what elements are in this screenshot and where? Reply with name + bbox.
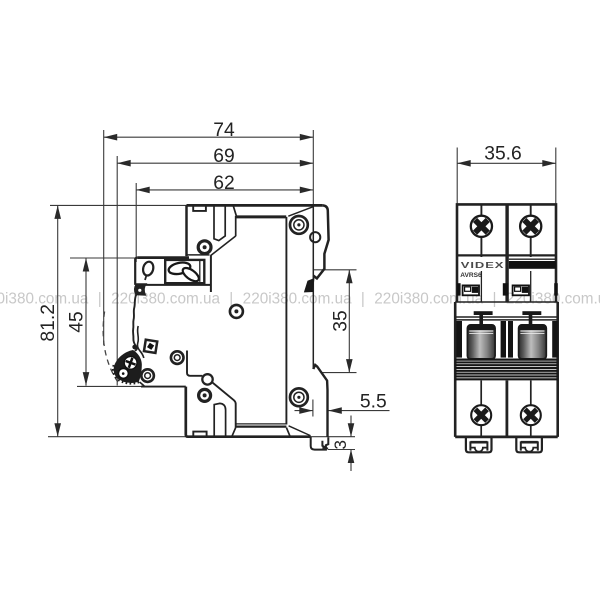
svg-text:220i380.com.ua: 220i380.com.ua: [111, 291, 220, 308]
svg-text:VIDEX: VIDEX: [461, 261, 505, 270]
svg-text:35: 35: [330, 310, 351, 331]
svg-text:69: 69: [213, 146, 234, 167]
svg-text:220i380.com.ua: 220i380.com.ua: [243, 291, 352, 308]
svg-text:81.2: 81.2: [38, 304, 59, 342]
svg-text:45: 45: [66, 311, 87, 332]
svg-text:62: 62: [213, 173, 234, 194]
svg-text:|: |: [493, 291, 497, 308]
svg-text:35.6: 35.6: [484, 143, 522, 164]
svg-text:|: |: [98, 291, 102, 308]
svg-text:3: 3: [331, 440, 350, 449]
svg-text:74: 74: [213, 120, 235, 141]
svg-text:|: |: [361, 291, 365, 308]
svg-text:AVRS6: AVRS6: [460, 272, 482, 279]
svg-text:5.5: 5.5: [360, 392, 387, 413]
